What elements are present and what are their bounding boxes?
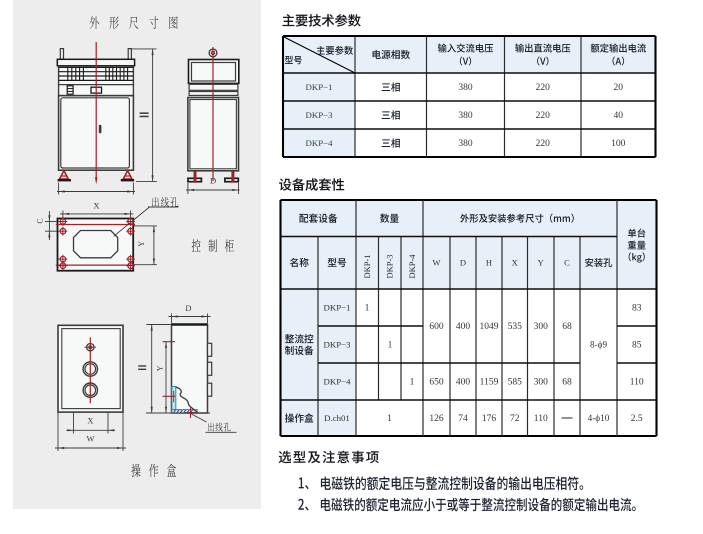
svg-text:68: 68 (562, 378, 572, 388)
svg-text:40: 40 (614, 111, 624, 121)
svg-text:400: 400 (456, 322, 471, 332)
svg-text:74: 74 (458, 414, 468, 424)
svg-text:220: 220 (536, 83, 551, 93)
svg-text:D.ch01: D.ch01 (324, 413, 350, 423)
svg-text:72: 72 (510, 414, 520, 424)
svg-text:DKP−4: DKP−4 (324, 377, 352, 387)
svg-text:380: 380 (458, 139, 473, 149)
svg-text:300: 300 (534, 322, 549, 332)
svg-text:1159: 1159 (480, 378, 499, 388)
svg-text:650: 650 (429, 378, 444, 388)
svg-text:585: 585 (508, 378, 523, 388)
svg-text:85: 85 (632, 341, 642, 351)
svg-text:380: 380 (458, 111, 473, 121)
svg-text:4-ϕ10: 4-ϕ10 (588, 413, 610, 423)
svg-text:1: 1 (410, 378, 415, 388)
svg-text:DKP-1: DKP-1 (362, 254, 372, 278)
svg-text:110: 110 (534, 414, 548, 424)
svg-text:1: 1 (387, 414, 392, 424)
svg-text:126: 126 (429, 414, 444, 424)
svg-text:D: D (460, 258, 466, 268)
svg-text:Y: Y (156, 365, 165, 371)
svg-text:220: 220 (536, 139, 551, 149)
svg-text:DKP-4: DKP-4 (407, 254, 417, 279)
svg-text:176: 176 (482, 414, 497, 424)
svg-text:DKP−3: DKP−3 (306, 110, 334, 120)
svg-text:X: X (93, 201, 99, 211)
svg-text:X: X (87, 416, 93, 426)
svg-text:C: C (564, 258, 570, 268)
svg-text:83: 83 (632, 304, 642, 314)
svg-text:600: 600 (429, 322, 444, 332)
svg-text:C: C (36, 218, 45, 223)
svg-text:D: D (185, 303, 191, 313)
svg-text:DKP-3: DKP-3 (385, 254, 395, 278)
svg-text:H: H (486, 258, 492, 268)
svg-text:1049: 1049 (480, 322, 499, 332)
svg-text:300: 300 (534, 378, 549, 388)
svg-text:400: 400 (456, 378, 471, 388)
svg-text:100: 100 (611, 139, 626, 149)
svg-text:W: W (432, 258, 440, 268)
svg-text:Y: Y (538, 258, 544, 268)
svg-text:DKP−1: DKP−1 (324, 303, 351, 313)
svg-text:220: 220 (536, 111, 551, 121)
svg-text:Y: Y (137, 241, 146, 247)
svg-text:110: 110 (630, 378, 644, 388)
svg-text:W: W (86, 434, 94, 444)
svg-text:DKP−4: DKP−4 (306, 138, 334, 148)
svg-text:DKP−3: DKP−3 (324, 340, 352, 350)
svg-text:8-ϕ9: 8-ϕ9 (590, 340, 607, 350)
svg-text:1: 1 (388, 341, 393, 351)
svg-text:2.5: 2.5 (631, 414, 643, 424)
svg-text:380: 380 (458, 83, 473, 93)
svg-text:X: X (512, 258, 518, 268)
svg-text:535: 535 (508, 322, 523, 332)
svg-text:1: 1 (365, 304, 370, 314)
svg-text:DKP−1: DKP−1 (306, 82, 333, 92)
svg-text:D: D (210, 175, 216, 185)
svg-text:20: 20 (614, 83, 624, 93)
svg-text:68: 68 (562, 322, 572, 332)
